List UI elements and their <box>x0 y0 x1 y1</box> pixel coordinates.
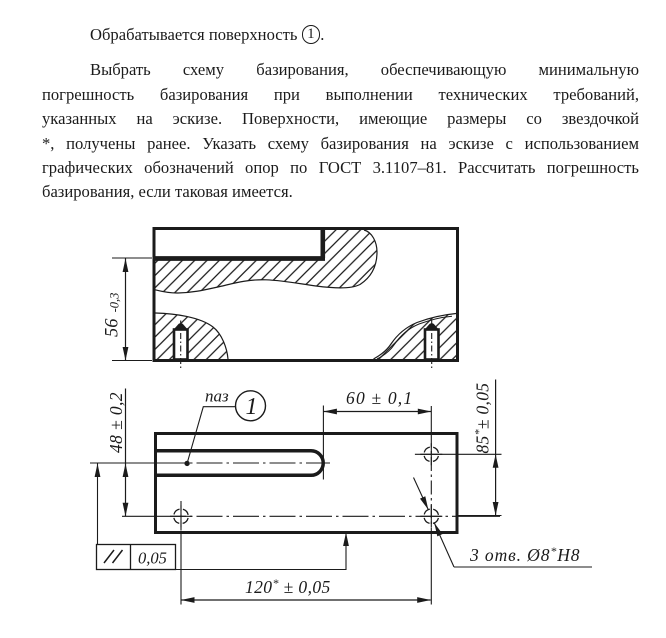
svg-text:3 отв. Ø8*H8: 3 отв. Ø8*H8 <box>469 544 580 565</box>
svg-text:1: 1 <box>246 394 258 420</box>
svg-text:120* ± 0,05: 120* ± 0,05 <box>245 576 331 597</box>
svg-text:60 ± 0,1: 60 ± 0,1 <box>346 388 413 408</box>
svg-text:85*± 0,05: 85*± 0,05 <box>472 383 493 454</box>
svg-text:48 ± 0,2: 48 ± 0,2 <box>106 392 126 453</box>
svg-text:0,05: 0,05 <box>138 549 167 568</box>
svg-text:паз: паз <box>205 387 229 406</box>
svg-text:56 -0,3: 56 -0,3 <box>103 293 123 337</box>
